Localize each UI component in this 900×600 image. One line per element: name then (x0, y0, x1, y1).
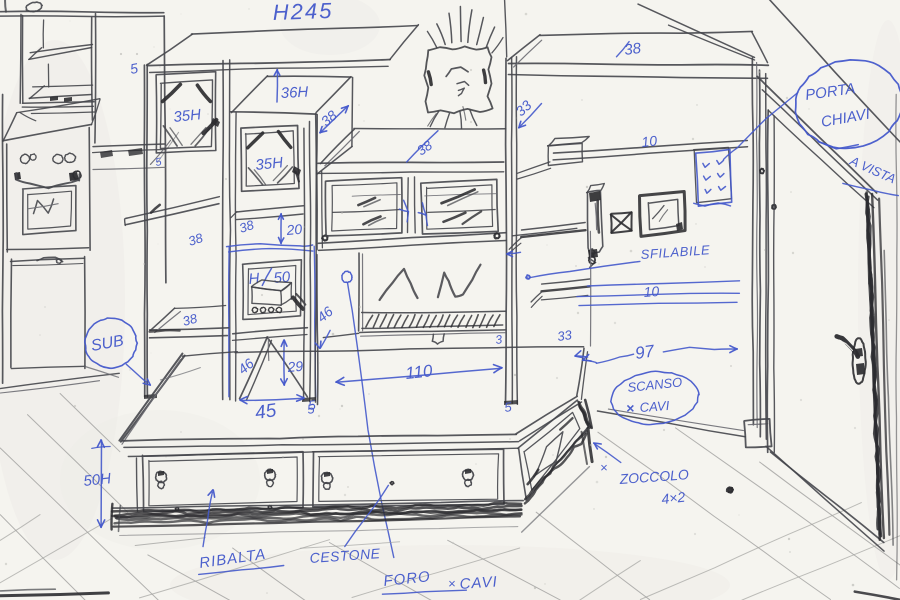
svg-text:35H: 35H (173, 106, 202, 126)
svg-text:33: 33 (556, 327, 573, 344)
svg-text:10: 10 (643, 283, 660, 300)
svg-text:110: 110 (404, 361, 433, 383)
svg-text:35H: 35H (255, 154, 284, 174)
svg-text:10: 10 (641, 132, 658, 150)
svg-text:20: 20 (285, 221, 303, 238)
svg-text:×: × (626, 400, 634, 416)
svg-text:×: × (600, 460, 608, 475)
svg-text:97: 97 (634, 341, 656, 363)
svg-text:45: 45 (254, 400, 278, 424)
svg-text:50H: 50H (83, 470, 112, 490)
svg-text:CAVI: CAVI (639, 398, 670, 415)
svg-text:H245: H245 (272, 0, 333, 25)
svg-text:36H: 36H (280, 84, 309, 102)
svg-text:29: 29 (286, 358, 304, 375)
svg-text:4×2: 4×2 (661, 489, 687, 507)
svg-text:38: 38 (623, 40, 643, 59)
svg-text:×: × (448, 576, 456, 591)
